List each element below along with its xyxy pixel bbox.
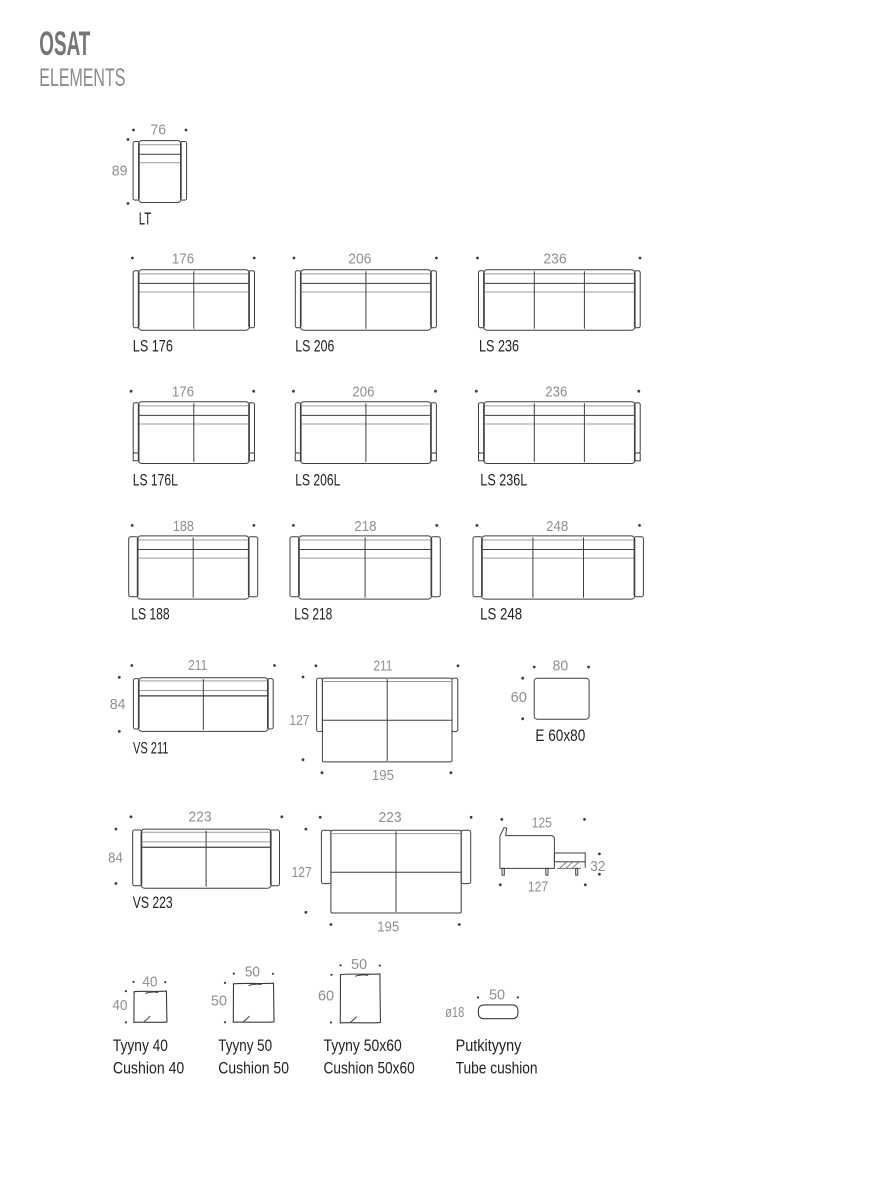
- svg-text:127: 127: [528, 878, 548, 895]
- svg-text:188: 188: [173, 517, 194, 534]
- svg-text:Cushion 50x60: Cushion 50x60: [324, 1059, 415, 1078]
- svg-text:32: 32: [590, 858, 605, 875]
- svg-text:LS 206L: LS 206L: [295, 472, 340, 490]
- svg-text:LS 188: LS 188: [131, 606, 169, 624]
- svg-text:211: 211: [188, 657, 207, 674]
- svg-text:50: 50: [351, 957, 367, 973]
- svg-text:LS 248: LS 248: [480, 605, 522, 624]
- svg-text:206: 206: [348, 251, 371, 268]
- svg-text:195: 195: [377, 919, 399, 936]
- svg-text:ø18: ø18: [445, 1003, 464, 1020]
- svg-text:236: 236: [543, 251, 566, 268]
- svg-text:176: 176: [172, 251, 194, 268]
- svg-text:LS 236L: LS 236L: [480, 472, 527, 490]
- svg-text:Tyyny 50: Tyyny 50: [218, 1037, 272, 1056]
- svg-text:40: 40: [142, 973, 157, 990]
- svg-text:195: 195: [372, 767, 394, 784]
- svg-text:ELEMENTS: ELEMENTS: [39, 64, 125, 91]
- svg-text:89: 89: [112, 163, 128, 179]
- svg-text:LS 206: LS 206: [295, 338, 334, 356]
- svg-text:50: 50: [245, 963, 260, 980]
- svg-text:176: 176: [172, 384, 194, 401]
- svg-text:127: 127: [289, 712, 309, 729]
- svg-text:LS 176: LS 176: [133, 338, 173, 356]
- svg-text:LT: LT: [139, 209, 151, 229]
- svg-text:VS 211: VS 211: [133, 738, 169, 757]
- svg-text:LS 176L: LS 176L: [133, 472, 178, 490]
- svg-text:80: 80: [553, 658, 569, 674]
- svg-text:Putkityyny: Putkityyny: [456, 1037, 522, 1055]
- svg-text:60: 60: [511, 690, 527, 706]
- svg-text:125: 125: [532, 814, 552, 831]
- svg-text:50: 50: [211, 994, 227, 1010]
- svg-text:218: 218: [354, 518, 376, 535]
- svg-text:127: 127: [292, 864, 312, 881]
- svg-text:LS 218: LS 218: [294, 606, 332, 624]
- svg-text:Tube cushion: Tube cushion: [456, 1059, 538, 1077]
- svg-text:LS 236: LS 236: [479, 338, 519, 356]
- svg-text:50: 50: [489, 987, 505, 1003]
- svg-text:211: 211: [373, 657, 392, 674]
- svg-text:236: 236: [545, 383, 567, 400]
- svg-text:248: 248: [546, 517, 568, 534]
- svg-text:E 60x80: E 60x80: [535, 727, 585, 746]
- svg-text:Tyyny 40: Tyyny 40: [113, 1037, 168, 1055]
- svg-text:84: 84: [110, 697, 126, 713]
- svg-text:Cushion 40: Cushion 40: [113, 1059, 184, 1077]
- svg-text:OSAT: OSAT: [39, 24, 90, 62]
- svg-text:84: 84: [108, 849, 123, 866]
- svg-text:76: 76: [150, 122, 166, 138]
- svg-text:60: 60: [318, 989, 334, 1005]
- svg-text:Tyyny 50x60: Tyyny 50x60: [324, 1037, 402, 1055]
- svg-text:Cushion 50: Cushion 50: [218, 1059, 289, 1077]
- svg-text:223: 223: [188, 809, 211, 826]
- svg-text:206: 206: [352, 383, 374, 400]
- svg-text:223: 223: [378, 809, 401, 826]
- svg-text:40: 40: [112, 997, 127, 1014]
- svg-text:VS 223: VS 223: [133, 895, 173, 913]
